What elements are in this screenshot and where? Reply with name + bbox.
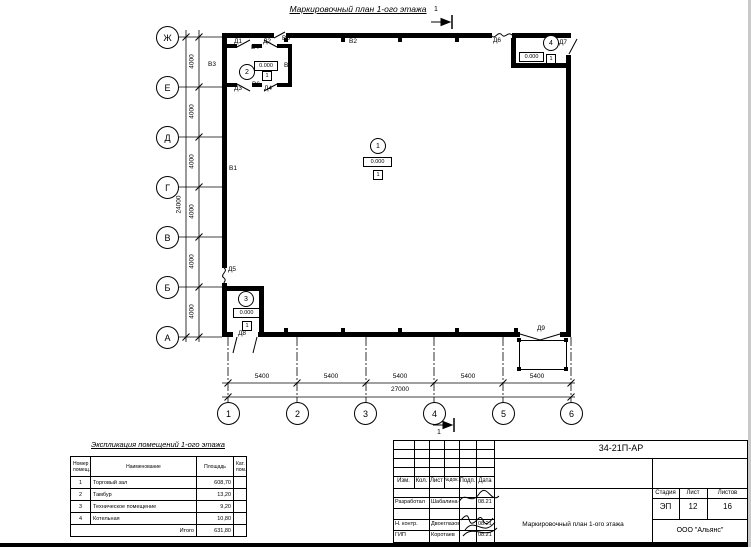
dim-5400-1: 5400 [247,374,277,381]
dim-4000-5: 4000 [190,247,197,277]
wall-label-v5: В5 [282,36,290,43]
dim-4000-4: 4000 [190,197,197,227]
sheets-label: Листов [707,490,748,496]
titleblock-grid-line [393,467,494,468]
door-label-d8: Д8 [238,331,246,338]
dim-4000-1: 4000 [190,47,197,77]
room-1-floor-mark: 1 [373,170,383,180]
titleblock-grid-line [652,519,748,520]
sheet-value: 12 [679,503,707,511]
wall-label-v6: В6 [252,82,260,89]
explication-table: Номер помещ. Наименование Площадь Кат. п… [70,456,247,537]
room-3-floor-mark: 1 [242,321,252,331]
room-3-elevation: 0.000 [233,308,260,318]
dim-27000: 27000 [385,387,415,394]
document-code: 34-21П-АР [494,444,748,453]
room-2-floor-mark: 1 [262,71,272,81]
room-2-elevation: 0.000 [254,61,278,71]
explication-header-row: Номер помещ. Наименование Площадь Кат. п… [71,457,247,477]
door-label-d1: Д1 [234,39,242,46]
axis-row-v: В [156,226,179,249]
tb-role-developer: Разработал [395,500,425,506]
dim-5400-2: 5400 [316,374,346,381]
room-3-number: 3 [238,291,254,307]
axis-col-4: 4 [423,402,446,425]
wall-label-v1: В1 [229,166,237,173]
tb-name-developer: Шабалина [431,500,458,506]
col-header-name: Наименование [91,457,197,477]
axis-col-6: 6 [560,402,583,425]
tb-col-izm: Изм. [393,478,414,484]
wall-label-v2: В2 [349,39,357,46]
sheets-value: 16 [707,503,748,511]
explication-title: Экспликация помещений 1-ого этажа [74,440,242,449]
room-4-floor-mark: 1 [546,54,556,64]
stage-value: ЭП [652,503,679,511]
tb-name-gip: Коротаев [431,533,455,539]
axis-row-d: Д [156,126,179,149]
axis-col-1: 1 [217,402,240,425]
wall-label-v3: В3 [208,62,216,69]
col-header-room-number: Номер помещ. [71,457,91,477]
table-row: 2 Тамбур 13,20 [71,489,247,501]
tb-col-data: Дата [476,478,494,484]
section-mark-top: 1 [434,6,438,13]
signature-scribbles [455,488,503,543]
titleblock-grid-line [652,498,748,499]
total-area: 631,80 [197,525,234,537]
sheet-label: Лист [679,490,707,496]
axis-col-3: 3 [354,402,377,425]
door-label-d9: Д9 [537,326,545,333]
room-4-elevation: 0.000 [519,52,544,62]
axis-row-e: Е [156,76,179,99]
table-total-row: Итого 631,80 [71,525,247,537]
tb-col-list: Лист [429,478,444,484]
axis-row-b: Б [156,276,179,299]
table-row: 4 Котельная 10,80 [71,513,247,525]
section-mark-bottom: 1 [437,429,441,436]
titleblock-grid-line [393,488,748,489]
plan-title: Маркировочный план 1-ого этажа [288,4,428,14]
door-label-d7: Д7 [559,40,567,47]
door-label-d5: Д5 [228,267,236,274]
col-header-area: Площадь [197,457,234,477]
room-4-number: 4 [543,35,559,51]
door-label-d2: Д2 [263,39,271,46]
titleblock-grid-line [429,440,430,543]
tb-role-ncontrol: Н. контр. [395,522,418,528]
drawing-sheet: Маркировочный план 1-ого этажа 1 1 Ж Е Д… [0,0,751,547]
room-1-elevation: 0.000 [363,157,392,167]
stage-label: Стадия [652,490,679,496]
titleblock-grid-line [393,458,748,459]
axis-col-5: 5 [492,402,515,425]
door-label-d3: Д3 [234,86,242,93]
tb-col-podp: Подп. [459,478,476,484]
dim-24000: 24000 [177,187,184,223]
dim-4000-6: 4000 [190,297,197,327]
table-row: 1 Торговый зал 608,70 [71,477,247,489]
wall-label-v4: В4 [251,45,259,52]
dim-4000-3: 4000 [190,147,197,177]
titleblock-grid-line [393,449,494,450]
sheet-bottom-border [0,543,751,547]
dim-5400-4: 5400 [453,374,483,381]
axis-row-a: А [156,326,179,349]
company-name: ООО "Альянс" [652,527,748,534]
wall-label-v7: В7 [284,63,292,70]
tb-col-kol: Кол. [414,478,429,484]
door-label-d6: Д6 [493,38,501,45]
floor-plan-linework [0,0,751,440]
dim-5400-3: 5400 [385,374,415,381]
col-header-category: Кат. пом. [234,457,247,477]
room-2-number: 2 [239,64,255,80]
total-label: Итого [71,525,197,537]
tb-role-gip: ГИП [395,533,406,539]
axis-row-zh: Ж [156,26,179,49]
dim-4000-2: 4000 [190,97,197,127]
document-name: Маркировочный план 1-ого этажа [494,522,652,529]
door-label-d4: Д4 [264,86,272,93]
table-row: 3 Техническое помещение 9,20 [71,501,247,513]
dim-5400-5: 5400 [522,374,552,381]
tb-col-ndok: №док. [444,478,459,483]
axis-col-2: 2 [286,402,309,425]
room-1-number: 1 [370,138,386,154]
